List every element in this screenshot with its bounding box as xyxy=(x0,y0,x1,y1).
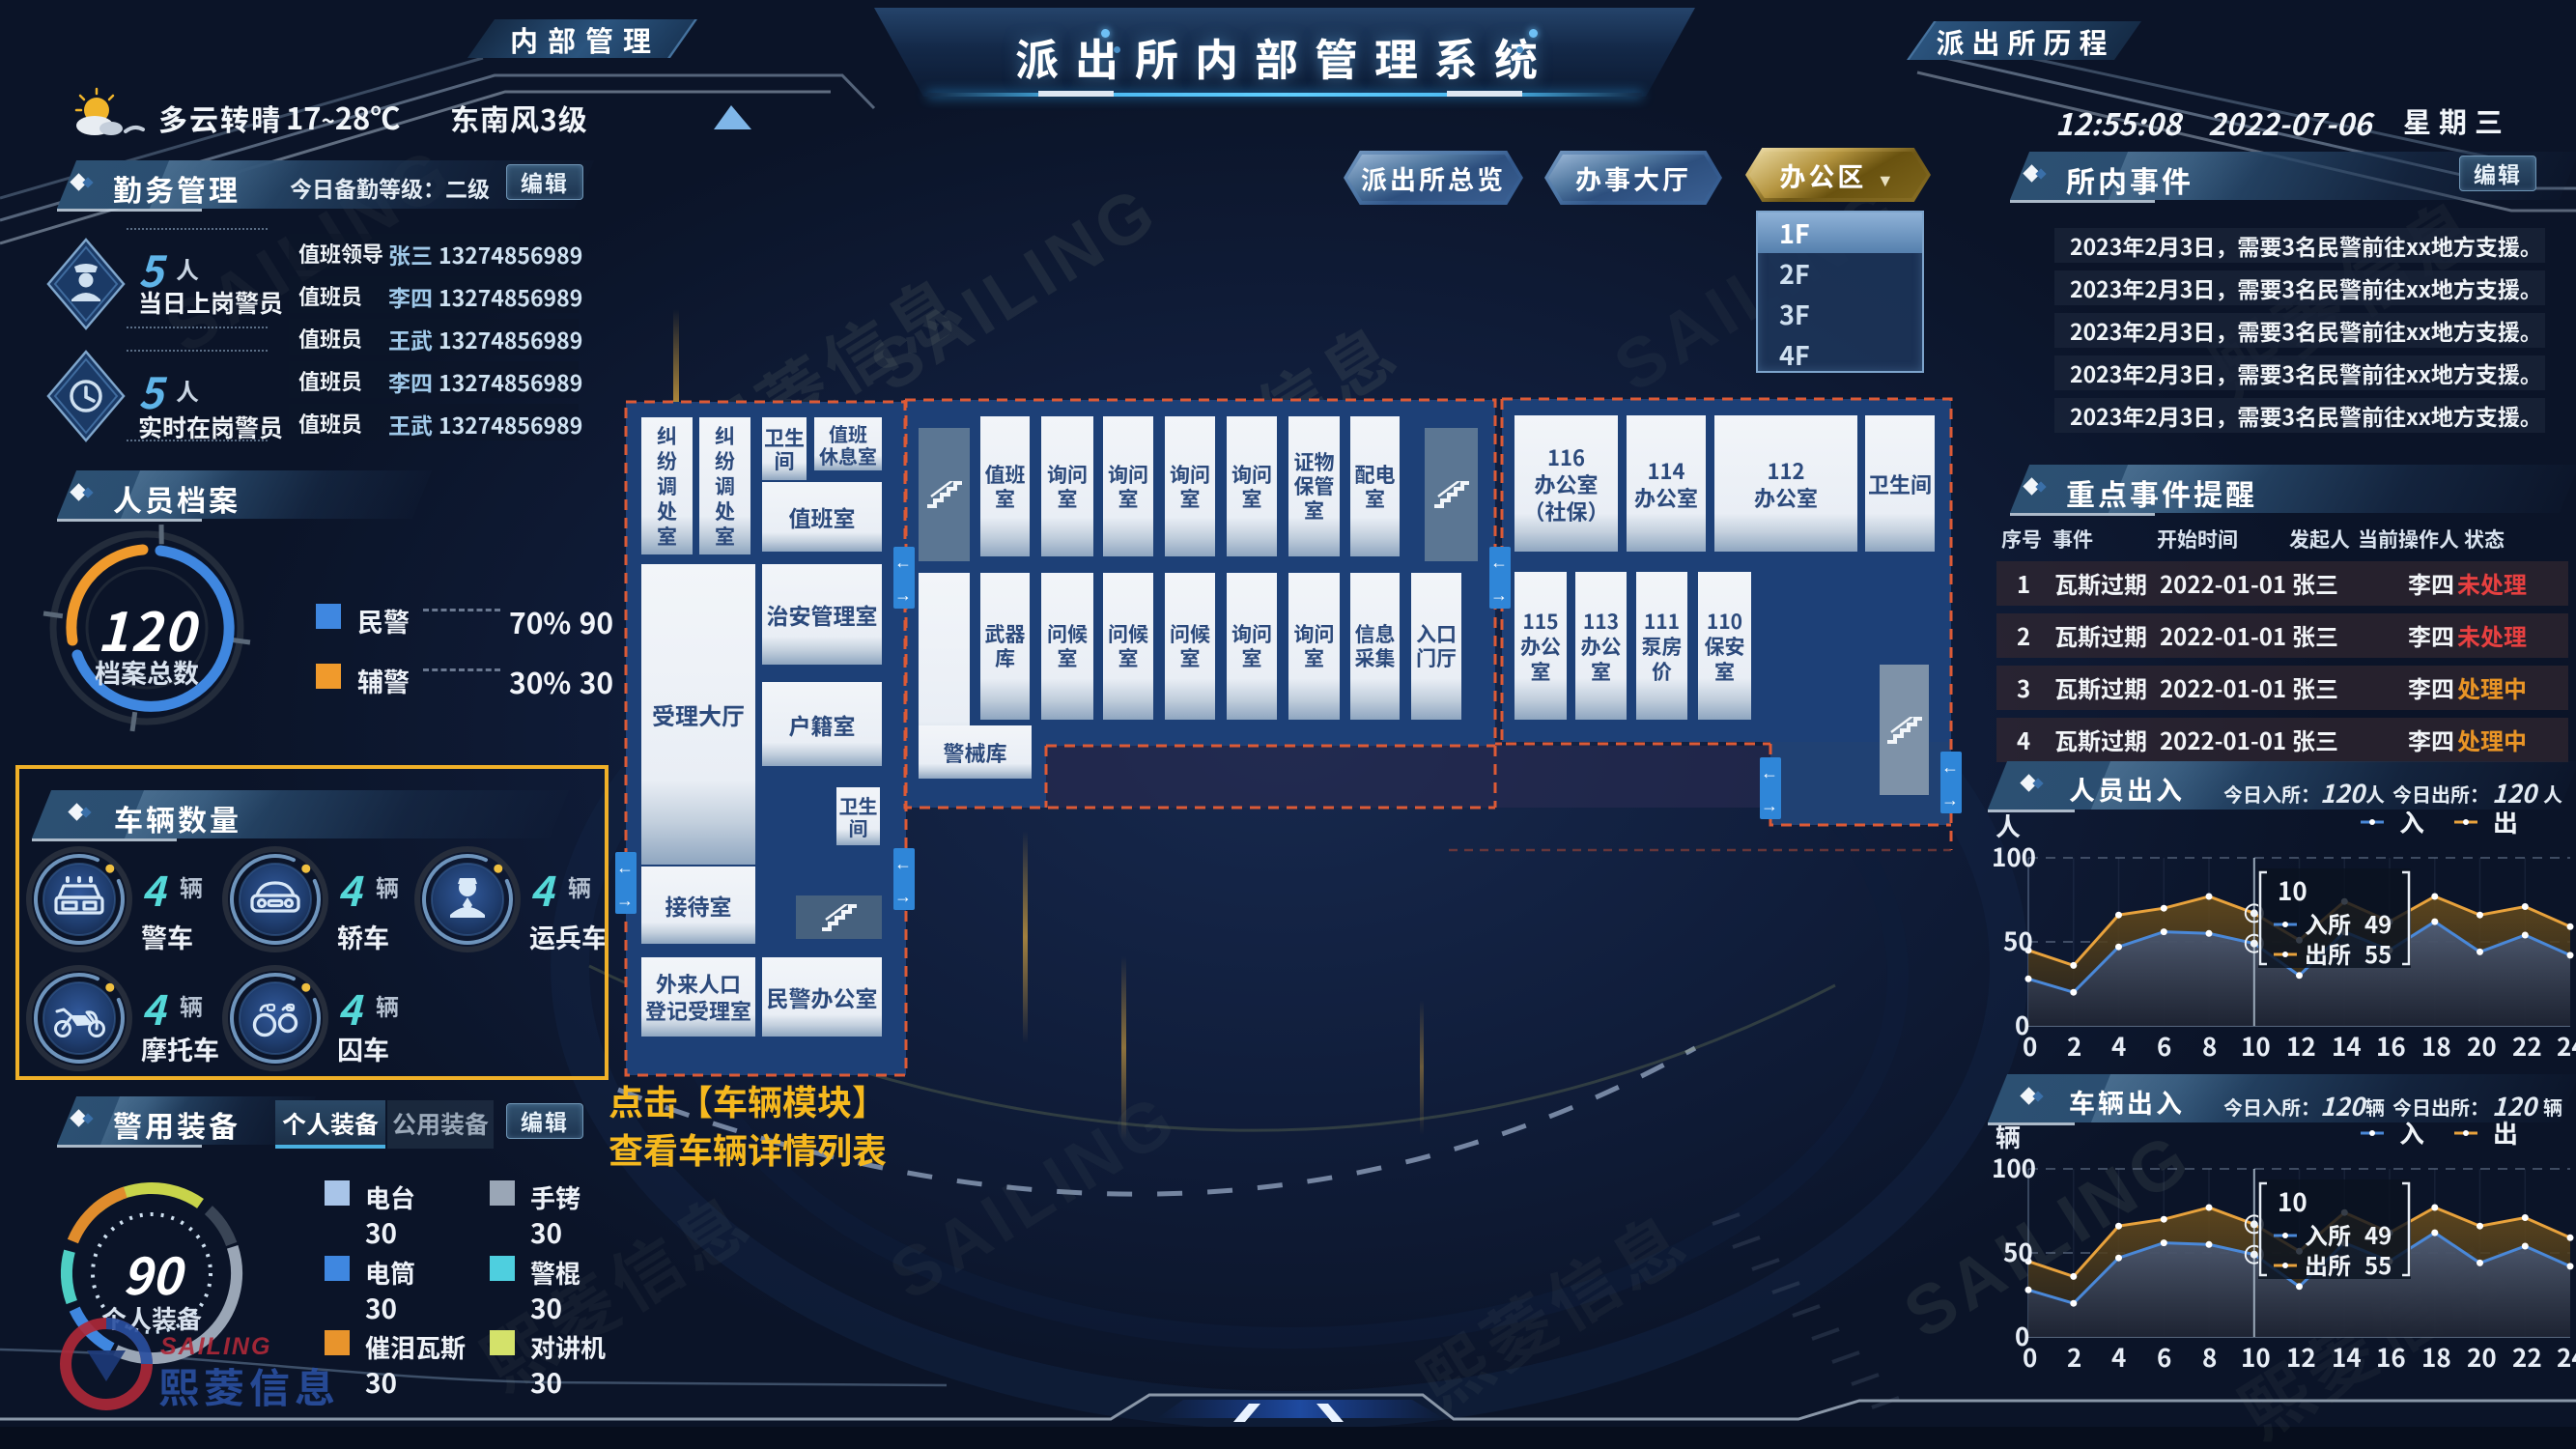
svg-text:人: 人 xyxy=(1996,811,2021,843)
svg-text:熙菱信息: 熙菱信息 xyxy=(158,1356,340,1415)
